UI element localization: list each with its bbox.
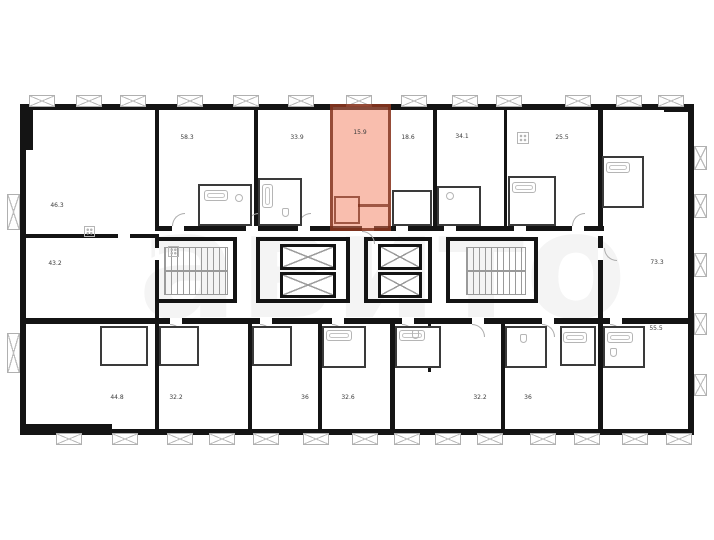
- wall: [155, 104, 159, 231]
- bathtub-icon: [563, 332, 587, 343]
- interior-partition: [392, 190, 432, 226]
- window-icon: [177, 95, 203, 107]
- window-icon: [56, 433, 82, 445]
- window-icon: [76, 95, 102, 107]
- bathtub-icon: [326, 330, 352, 341]
- door-opening: [610, 318, 622, 324]
- window-icon: [694, 313, 707, 335]
- bathtub-icon: [606, 162, 630, 173]
- window-icon: [435, 433, 461, 445]
- wall: [20, 318, 694, 324]
- floor-plan: авито: [0, 0, 714, 540]
- unit-area-label: 44.8: [110, 395, 123, 401]
- wall: [346, 237, 350, 303]
- window-icon: [574, 433, 600, 445]
- window-icon: [167, 433, 193, 445]
- unit-area-label: 36: [524, 395, 532, 401]
- toilet-icon: [610, 348, 617, 357]
- stairs-icon: [466, 270, 526, 272]
- door-opening: [118, 234, 130, 238]
- door-opening: [542, 318, 554, 324]
- window-icon: [253, 433, 279, 445]
- unit-area-label: 32.6: [341, 395, 354, 401]
- window-icon: [452, 95, 478, 107]
- bathtub-icon: [204, 190, 228, 201]
- wall: [446, 237, 450, 303]
- window-icon: [352, 433, 378, 445]
- window-icon: [401, 95, 427, 107]
- door-opening: [444, 226, 456, 231]
- wall: [233, 237, 237, 303]
- window-icon: [7, 333, 20, 373]
- stove-icon: [168, 246, 179, 257]
- bathtub-icon: [607, 332, 633, 343]
- wall: [159, 299, 237, 303]
- door-opening: [170, 318, 182, 324]
- sink-icon: [235, 194, 243, 202]
- window-icon: [694, 253, 707, 277]
- wall: [504, 104, 507, 231]
- window-icon: [233, 95, 259, 107]
- interior-partition: [100, 326, 148, 366]
- stove-icon: [84, 226, 95, 237]
- unit-area-label: 18.6: [401, 135, 414, 141]
- window-icon: [694, 146, 707, 170]
- unit-area-label: 46.3: [50, 203, 63, 209]
- wall: [446, 299, 538, 303]
- bathtub-icon: [512, 182, 536, 193]
- interior-partition: [505, 326, 547, 368]
- wall: [256, 299, 350, 303]
- elevator-shaft-icon: [280, 244, 336, 270]
- unit-area-label: 58.3: [180, 135, 193, 141]
- wall: [20, 424, 112, 430]
- door-opening: [332, 318, 344, 324]
- window-icon: [666, 433, 692, 445]
- unit-area-label: 73.3: [650, 260, 663, 266]
- toilet-icon: [282, 208, 289, 217]
- window-icon: [112, 433, 138, 445]
- elevator-shaft-icon: [280, 272, 336, 298]
- wall: [256, 237, 350, 241]
- unit-area-label: 36: [301, 395, 309, 401]
- wall: [446, 237, 538, 241]
- door-opening: [402, 318, 414, 324]
- door-opening: [155, 248, 159, 260]
- unit-area-label: 25.5: [555, 135, 568, 141]
- wall: [364, 299, 432, 303]
- door-opening: [472, 318, 484, 324]
- unit-area-label: 33.9: [290, 135, 303, 141]
- window-icon: [209, 433, 235, 445]
- door-opening: [572, 226, 584, 231]
- elevator-shaft-icon: [378, 272, 422, 298]
- window-icon: [120, 95, 146, 107]
- bathtub-icon: [262, 184, 273, 208]
- window-icon: [616, 95, 642, 107]
- interior-partition: [437, 186, 481, 226]
- wall: [428, 237, 432, 303]
- elevator-shaft-icon: [378, 244, 422, 270]
- sink-icon: [446, 192, 454, 200]
- wall: [20, 104, 33, 150]
- window-icon: [7, 194, 20, 230]
- door-opening: [598, 248, 603, 260]
- unit-area-label: 15.9: [353, 130, 366, 136]
- door-opening: [514, 226, 526, 231]
- stove-icon: [517, 132, 529, 144]
- window-icon: [29, 95, 55, 107]
- highlighted-unit-partition: [358, 204, 388, 207]
- window-icon: [694, 374, 707, 396]
- stairs-icon: [164, 270, 228, 272]
- window-icon: [394, 433, 420, 445]
- wall: [159, 237, 237, 241]
- door-opening: [260, 318, 272, 324]
- unit-area-label: 43.2: [48, 261, 61, 267]
- interior-partition: [159, 326, 199, 366]
- toilet-icon: [412, 330, 419, 339]
- window-icon: [658, 95, 684, 107]
- window-icon: [288, 95, 314, 107]
- window-icon: [622, 433, 648, 445]
- wall: [534, 237, 538, 303]
- door-opening: [172, 226, 184, 231]
- unit-area-label: 34.1: [455, 134, 468, 140]
- window-icon: [477, 433, 503, 445]
- window-icon: [530, 433, 556, 445]
- window-icon: [496, 95, 522, 107]
- door-opening: [298, 226, 310, 231]
- window-icon: [303, 433, 329, 445]
- window-icon: [694, 194, 707, 218]
- unit-area-label: 55.5: [649, 326, 662, 332]
- wall: [20, 104, 26, 435]
- door-opening: [246, 226, 258, 231]
- unit-area-label: 32.2: [473, 395, 486, 401]
- window-icon: [565, 95, 591, 107]
- door-opening: [396, 226, 408, 231]
- toilet-icon: [520, 334, 527, 343]
- interior-partition: [252, 326, 292, 366]
- highlighted-unit-bathroom: [334, 196, 360, 224]
- unit-area-label: 32.2: [169, 395, 182, 401]
- wall: [256, 237, 260, 303]
- wall: [364, 237, 368, 303]
